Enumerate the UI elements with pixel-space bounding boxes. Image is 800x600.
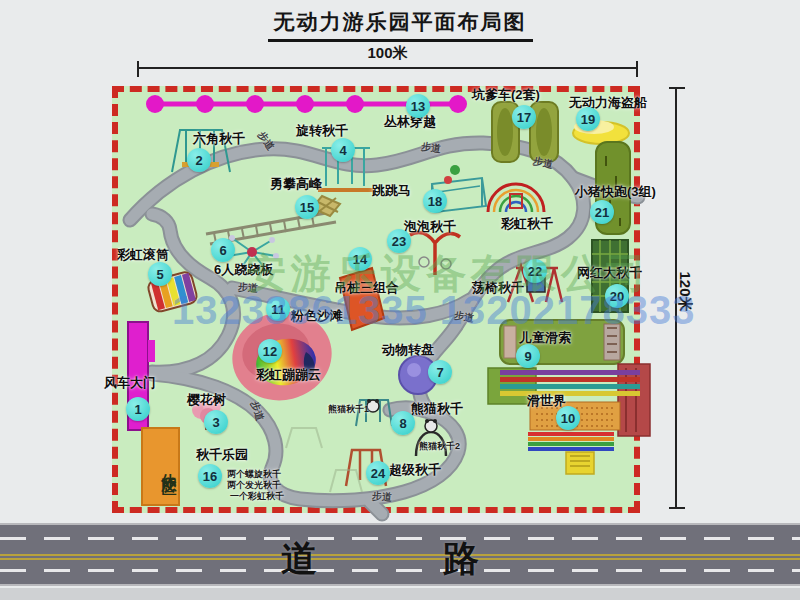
attraction-label-7: 动物转盘 [382,341,434,359]
attraction-label-3: 樱花树 [187,391,226,409]
attraction-badge-1: 1 [126,397,150,421]
dimension-top-label: 100米 [138,44,637,63]
attraction-label-21: 小猪快跑(3组) [575,183,656,201]
attraction-label-6: 6人跷跷板 [214,261,273,279]
park-layout-map: 无动力游乐园平面布局图 100米 120米 [0,0,800,600]
footpath-label: 步道 [532,154,554,172]
attraction-badge-18: 18 [423,189,447,213]
road: 道 路 [0,523,800,586]
attraction-label-22: 荡椅秋千 [472,279,524,297]
footpath-label: 步道 [372,489,393,504]
page-title: 无动力游乐园平面布局图 [0,8,800,42]
attraction-badge-14: 14 [348,247,372,271]
attraction-badge-20: 20 [605,284,629,308]
attraction-label-15: 勇攀高峰 [270,175,322,193]
dimension-top-line [138,67,637,69]
attraction-label-17: 坑爹车(2套) [472,86,540,104]
attraction-label-2: 六角秋千 [193,130,245,148]
footpath-label: 步道 [238,280,259,295]
attraction-badge-15: 15 [295,195,319,219]
extra-label: 彩虹秋千 [501,215,553,233]
road-label: 道 路 [0,535,760,584]
attraction-label-1: 风车大门 [104,374,156,392]
attraction-badge-23: 23 [387,229,411,253]
attraction-badge-16: 16 [198,464,222,488]
footpath-label: 步道 [420,140,442,157]
dimension-tick [669,87,685,89]
dimension-tick [636,61,638,77]
attraction-badge-12: 12 [258,339,282,363]
attraction-label-11: 粉色沙滩 [291,307,343,325]
dimension-right-label: 120米 [675,271,694,311]
attraction-badge-10: 10 [556,406,580,430]
attraction-badge-22: 22 [523,259,547,283]
dimension-tick [669,507,685,509]
attraction-badge-21: 21 [590,200,614,224]
attraction-label-20: 网红大秋千 [577,264,642,282]
attraction-badge-6: 6 [211,238,235,262]
attraction-badge-19: 19 [576,107,600,131]
attraction-badge-5: 5 [148,262,172,286]
attraction-label-24: 超级秋千 [389,461,441,479]
attraction-badge-11: 11 [266,297,290,321]
attraction-label-12: 彩虹蹦蹦云 [256,366,321,384]
extra-label: 熊猫秋千1 [328,403,369,416]
attraction-badge-2: 2 [187,148,211,172]
attraction-label-23: 泡泡秋千 [404,218,456,236]
dimension-tick [137,61,139,77]
footpath-label: 步道 [247,399,266,422]
footpath-label: 步道 [255,129,278,153]
attraction-badge-8: 8 [391,411,415,435]
attraction-label-14: 吊桩三组合 [334,279,399,297]
footpath-label: 步道 [453,308,475,325]
attraction-badge-24: 24 [366,461,390,485]
attraction-label-18: 跳跳马 [372,182,411,200]
extra-label: 熊猫秋千2 [419,440,460,453]
attraction-badge-7: 7 [428,360,452,384]
sidewalk-strip [0,588,800,600]
attraction-badge-3: 3 [204,410,228,434]
attraction-label-16: 秋千乐园 [196,446,248,464]
extra-label: 一个彩虹秋千 [230,490,284,503]
rest-area-label: 休憩区 [144,432,178,502]
attraction-badge-9: 9 [516,344,540,368]
attraction-badge-17: 17 [512,105,536,129]
attraction-badge-4: 4 [331,138,355,162]
attraction-label-8: 熊猫秋千 [411,400,463,418]
attraction-badge-13: 13 [406,94,430,118]
